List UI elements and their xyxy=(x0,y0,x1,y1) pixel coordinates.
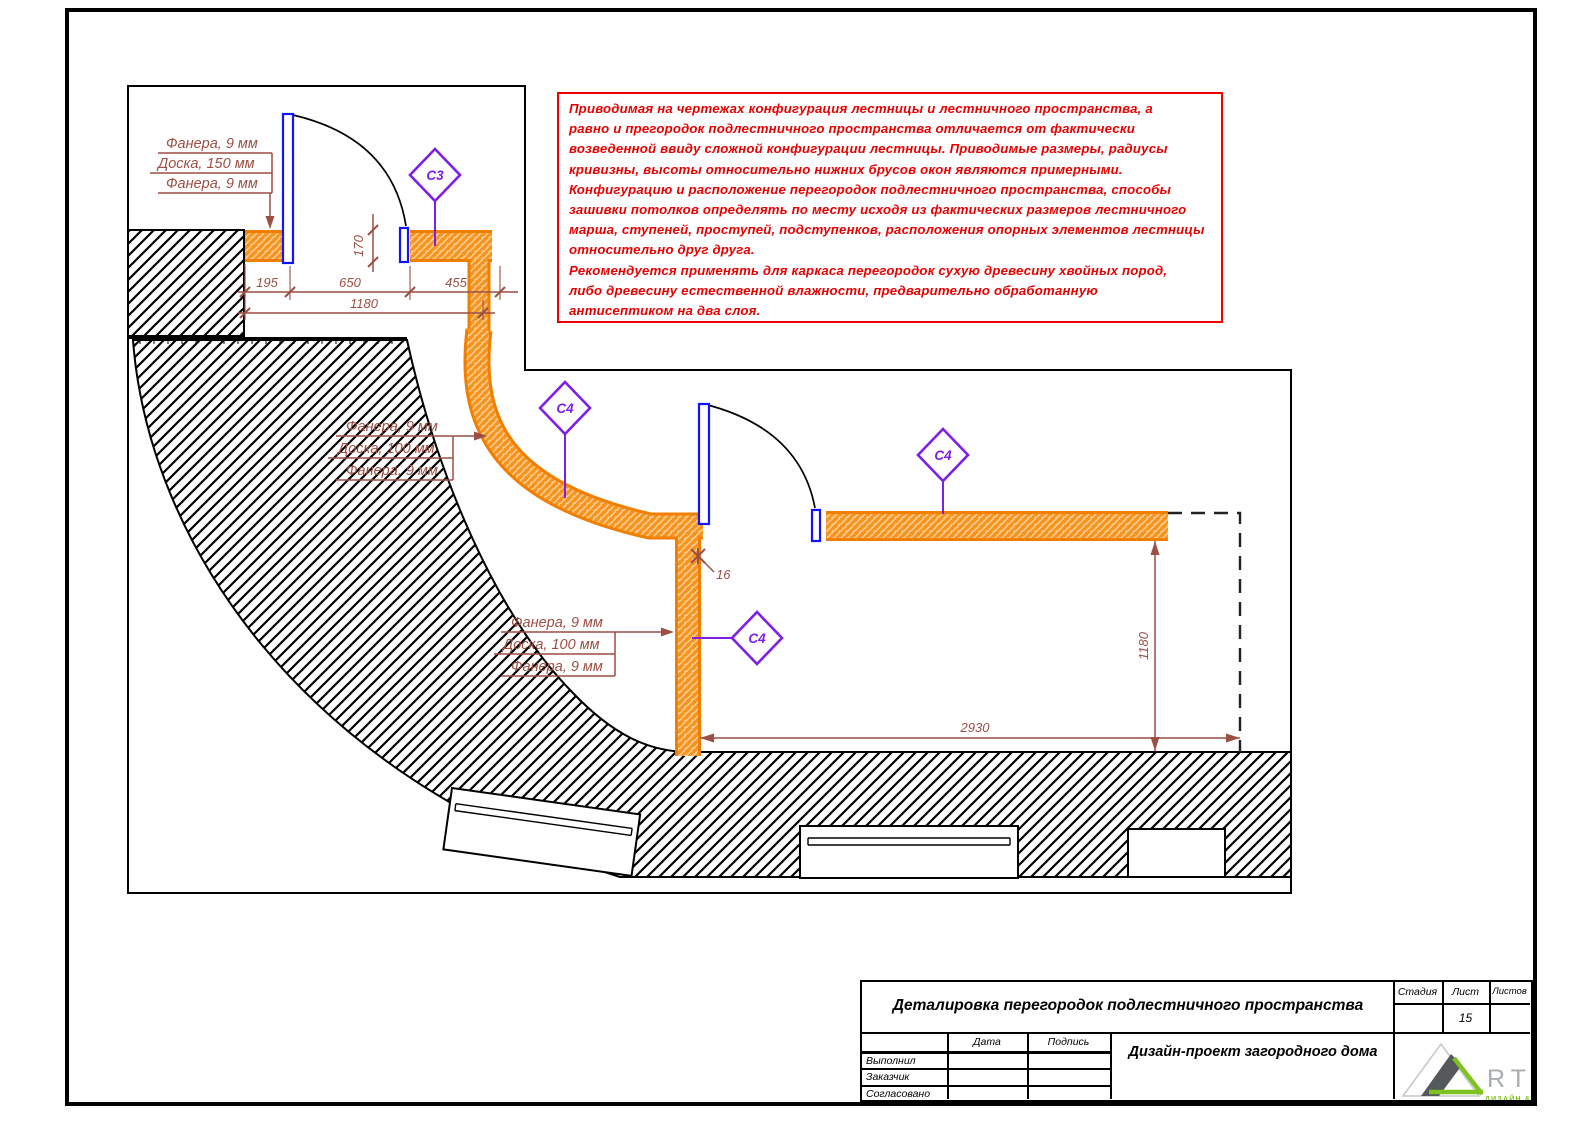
wall-block xyxy=(128,230,244,336)
dim-195: 195 xyxy=(256,275,278,290)
sheets-column-header: Листов xyxy=(1489,986,1530,997)
door-1-leaf xyxy=(283,114,293,263)
artel-logo: RTEL ДИЗАЙН & ДЕКОР xyxy=(1395,1034,1533,1102)
date-header: Дата xyxy=(947,1036,1027,1048)
drawing-sheet: 195 650 455 1180 170 16 2930 1180 Фанера… xyxy=(0,0,1587,1124)
note-line: либо древесину естественной влажности, п… xyxy=(569,281,1213,301)
door-1-swing-arc xyxy=(293,115,406,226)
note-line: зашивки потолков определять по месту исх… xyxy=(569,200,1213,220)
label-middle-1: Фанера, 9 мм xyxy=(346,419,438,435)
marker-c4-lower: C4 xyxy=(692,612,782,664)
dashed-projection-line xyxy=(1168,513,1240,752)
marker-c4-curve-label: C4 xyxy=(556,401,574,416)
door-2-swing-arc xyxy=(704,404,815,508)
label-lower-3: Фанера, 9 мм xyxy=(511,659,603,675)
note-line: Приводимая на чертежах конфигурация лест… xyxy=(569,99,1213,119)
label-lower-1: Фанера, 9 мм xyxy=(511,615,603,631)
window-horizontal xyxy=(800,826,1018,878)
note-line: кривизны, высоты относительно нижних бру… xyxy=(569,160,1213,180)
door-2-jamb xyxy=(812,510,820,541)
dim-650: 650 xyxy=(339,275,361,290)
dim-1180-right: 1180 xyxy=(1136,631,1151,660)
logo-tagline: ДИЗАЙН & ДЕКОР xyxy=(1485,1094,1533,1102)
marker-c4-right-label: C4 xyxy=(934,448,952,463)
row-executed: Выполнил xyxy=(866,1055,916,1067)
dim-2930: 2930 xyxy=(960,720,991,735)
title-block: Деталировка перегородок подлестничного п… xyxy=(860,980,1533,1102)
label-top-2: Доска, 150 мм xyxy=(156,156,255,172)
dim-455: 455 xyxy=(445,275,467,290)
leader-top: Фанера, 9 мм Доска, 150 мм Фанера, 9 мм xyxy=(150,136,275,229)
label-middle-3: Фанера, 9 мм xyxy=(346,463,438,479)
dim-16: 16 xyxy=(716,567,731,582)
row-approved: Согласовано xyxy=(866,1088,930,1100)
logo-letters: RTEL xyxy=(1487,1065,1533,1093)
stair-curved-wall xyxy=(133,340,1291,877)
marker-c4-right: C4 xyxy=(918,429,968,514)
window-right-partial xyxy=(1128,829,1225,877)
label-middle-2: Доска, 100 мм xyxy=(336,441,435,457)
logo-cell: RTEL ДИЗАЙН & ДЕКОР xyxy=(1395,1034,1533,1102)
door-2 xyxy=(699,404,820,541)
note-line: Рекомендуется применять для каркаса пере… xyxy=(569,261,1213,281)
titleblock-title: Деталировка перегородок подлестничного п… xyxy=(872,997,1384,1015)
project-name: Дизайн-проект загородного дома xyxy=(1114,1044,1392,1060)
row-customer: Заказчик xyxy=(866,1071,909,1083)
stage-column-header: Стадия xyxy=(1393,986,1442,998)
note-box: Приводимая на чертежах конфигурация лест… xyxy=(557,92,1223,323)
note-line: Конфигурацию и расположение перегородок … xyxy=(569,180,1213,200)
sheet-number: 15 xyxy=(1442,1011,1489,1025)
label-lower-2: Доска, 100 мм xyxy=(501,637,600,653)
door-2-leaf xyxy=(699,404,709,524)
door-1 xyxy=(283,114,408,263)
leader-middle: Фанера, 9 мм Доска, 100 мм Фанера, 9 мм xyxy=(328,419,487,480)
dim-1180-top: 1180 xyxy=(350,296,379,311)
note-line: равно и прегородок подлестничного простр… xyxy=(569,119,1213,139)
sheet-column-header: Лист xyxy=(1442,986,1489,998)
dim-170: 170 xyxy=(351,234,366,256)
signature-header: Подпись xyxy=(1027,1036,1110,1048)
label-top-3: Фанера, 9 мм xyxy=(166,176,258,192)
leader-lower: Фанера, 9 мм Доска, 100 мм Фанера, 9 мм xyxy=(494,615,674,676)
note-line: антисептиком на два слоя. xyxy=(569,301,1213,321)
marker-c3-label: C3 xyxy=(426,168,444,183)
note-line: возведенной ввиду сложной конфигурации л… xyxy=(569,139,1213,159)
note-line: относительно друг друга. xyxy=(569,240,1213,260)
marker-c4-lower-label: C4 xyxy=(748,631,766,646)
door-1-jamb xyxy=(400,228,408,262)
note-line: марша, ступеней, проступей, подступенков… xyxy=(569,220,1213,240)
label-top-1: Фанера, 9 мм xyxy=(166,136,258,152)
hatched-walls xyxy=(128,230,1291,878)
